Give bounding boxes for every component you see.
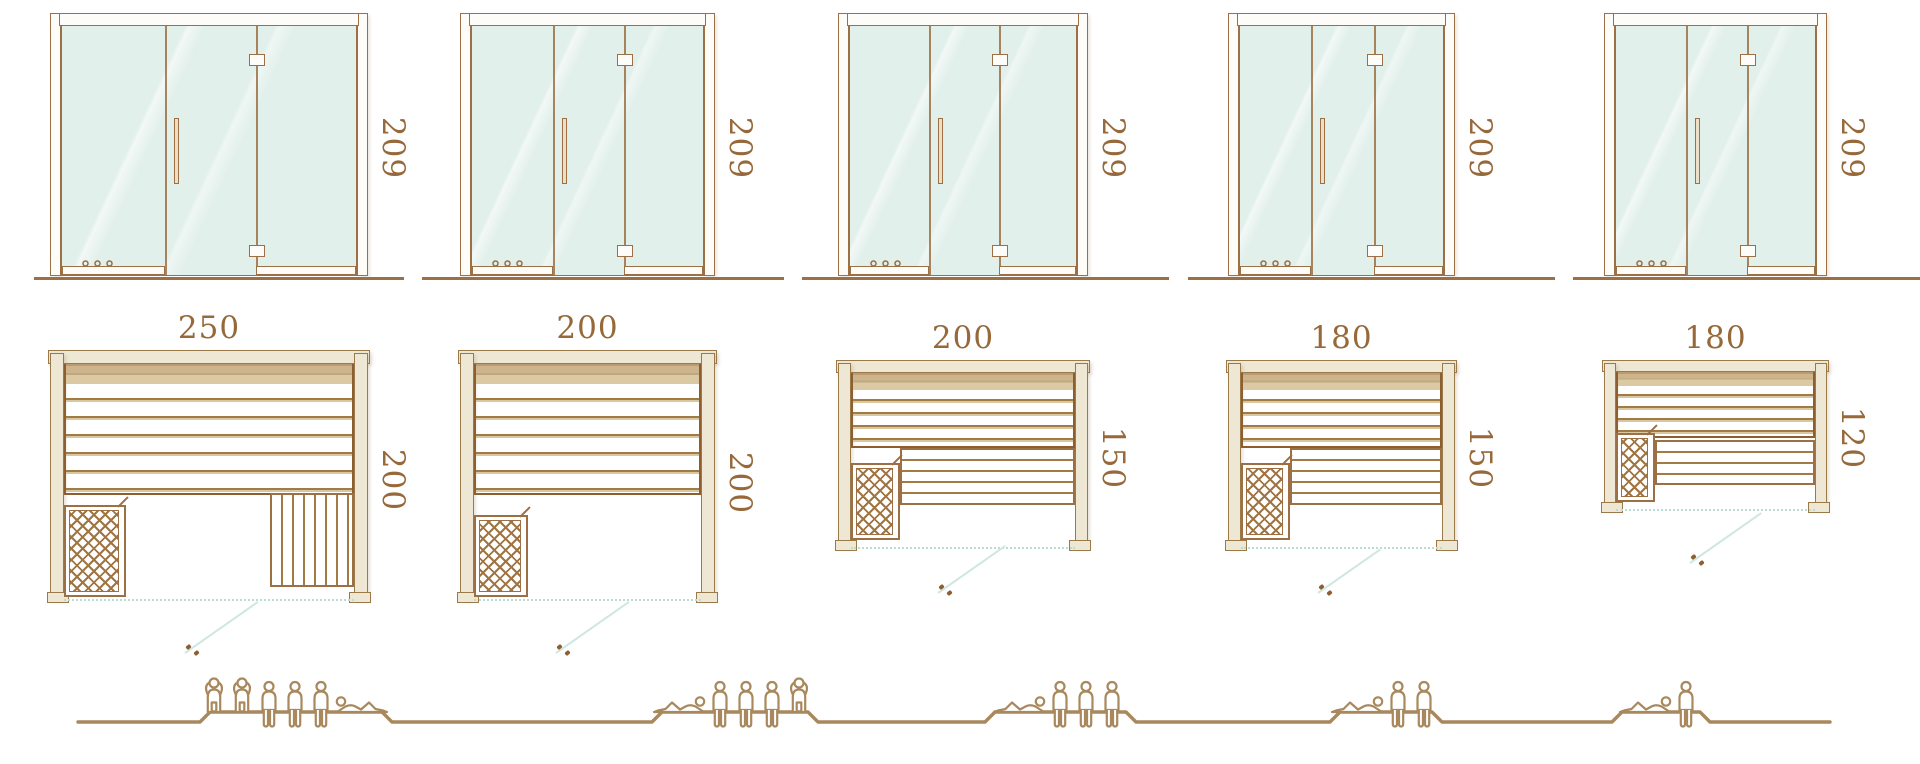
- wall-foot: [1808, 502, 1830, 513]
- door-front-elevation: [1228, 13, 1455, 277]
- glass-front-line: [474, 599, 701, 601]
- heater: [474, 515, 528, 597]
- frame-post-left-icon: [50, 13, 61, 276]
- person-sitting-icon: [766, 682, 779, 727]
- person-sitting-icon: [714, 682, 727, 727]
- wall-top: [1226, 360, 1457, 373]
- door-height-label: 209: [1462, 117, 1498, 179]
- door-handle-icon: [1320, 118, 1325, 184]
- door-height-label: 209: [1095, 117, 1131, 179]
- wall-right: [354, 353, 368, 600]
- plinth: [1616, 266, 1686, 275]
- frame-post-right-icon: [1816, 13, 1827, 276]
- ground-line: [1573, 277, 1920, 280]
- wall-foot: [1069, 540, 1091, 551]
- heater-grill-icon: [856, 468, 893, 535]
- door-front-elevation: [1604, 13, 1827, 277]
- upper-bench: [1241, 390, 1442, 448]
- door-handle-icon: [938, 118, 943, 184]
- door-swing-line: [555, 601, 629, 654]
- ground-line: [422, 277, 784, 280]
- wall-foot: [1225, 540, 1247, 551]
- wall-right: [1815, 363, 1827, 510]
- door-hinge-icon: [1740, 245, 1756, 257]
- frame-post-left-icon: [838, 13, 849, 276]
- ground-line: [802, 277, 1169, 280]
- wall-foot: [696, 592, 718, 603]
- plan-depth-label: 200: [375, 449, 411, 511]
- heater-grill-icon: [69, 510, 119, 592]
- heater: [1241, 463, 1290, 540]
- floor-plan: 180 150: [1228, 360, 1455, 548]
- door-hinge-icon: [249, 245, 265, 257]
- glass-divider: [1311, 26, 1313, 275]
- frame-post-left-icon: [460, 13, 471, 276]
- person-reclining-icon: [994, 697, 1044, 712]
- glass-divider: [165, 26, 167, 275]
- wall-top: [48, 350, 370, 364]
- glass-front-line: [1616, 509, 1815, 511]
- plinth: [62, 266, 165, 275]
- glass-front: [1615, 25, 1816, 276]
- person-standing-icon: [791, 679, 807, 713]
- door-hinge-icon: [617, 245, 633, 257]
- plan-depth-label: 200: [722, 452, 758, 514]
- door-height-label: 209: [722, 117, 758, 179]
- heater-grill-icon: [1246, 468, 1283, 535]
- floor-plan: 250 200: [50, 350, 368, 600]
- plan-width-label: 180: [1228, 320, 1455, 354]
- side-bench: [270, 493, 354, 587]
- people-groups: [206, 679, 1692, 727]
- person-sitting-icon: [1392, 682, 1405, 727]
- plinth: [999, 266, 1076, 275]
- upper-bench: [64, 384, 354, 495]
- wall-foot: [349, 592, 371, 603]
- terrain-line: [78, 712, 1830, 722]
- wall-top: [836, 360, 1090, 373]
- heater: [1616, 433, 1655, 502]
- wall-left: [1604, 363, 1616, 510]
- door-hinge-icon: [1740, 54, 1756, 66]
- plan-width-label: 250: [50, 310, 368, 344]
- variant-column-2: 209 200 200: [460, 0, 715, 764]
- bench-backrest: [64, 364, 354, 384]
- wall-right: [701, 353, 715, 600]
- bench-backrest: [474, 364, 701, 384]
- door-hinge-icon: [1367, 245, 1383, 257]
- frame-post-right-icon: [1077, 13, 1088, 276]
- door-hinge-icon: [992, 54, 1008, 66]
- ground-line: [1188, 277, 1555, 280]
- plinth: [1747, 266, 1815, 275]
- person-standing-icon: [234, 679, 250, 713]
- wall-top: [458, 350, 717, 364]
- glass-front-line: [64, 599, 354, 601]
- person-reclining-icon: [1332, 697, 1382, 712]
- frame-post-left-icon: [1604, 13, 1615, 276]
- glass-divider: [929, 26, 931, 275]
- variant-column-5: 209 180 120: [1604, 0, 1827, 764]
- wall-left: [838, 363, 851, 548]
- door-swing-line: [1689, 512, 1761, 564]
- plan-width-label: 200: [838, 320, 1088, 354]
- glass-divider: [1686, 26, 1688, 275]
- wall-left: [1228, 363, 1241, 548]
- frame-post-right-icon: [357, 13, 368, 276]
- bench-backrest: [851, 373, 1075, 390]
- door-swing-line: [1317, 549, 1380, 594]
- wall-foot: [1601, 502, 1623, 513]
- plan-depth-label: 120: [1834, 407, 1870, 469]
- door-front-elevation: [460, 13, 715, 277]
- frame-post-left-icon: [1228, 13, 1239, 276]
- door-height-label: 209: [1834, 117, 1870, 179]
- door-pivot-dots: [1698, 560, 1704, 566]
- heater-grill-icon: [479, 520, 521, 592]
- plinth: [256, 266, 356, 275]
- bench-backrest: [1241, 373, 1442, 390]
- door-pivot-dots: [1326, 590, 1332, 596]
- upper-bench: [851, 390, 1075, 448]
- wall-top: [1602, 360, 1829, 372]
- plinth: [1240, 266, 1311, 275]
- plan-depth-label: 150: [1462, 427, 1498, 489]
- plinth: [624, 266, 703, 275]
- wall-foot: [1436, 540, 1458, 551]
- floor-plan: 200 200: [460, 350, 715, 600]
- door-front-elevation: [838, 13, 1088, 277]
- heater-grill-icon: [1621, 438, 1648, 497]
- lower-bench: [1290, 448, 1442, 505]
- frame-post-right-icon: [1444, 13, 1455, 276]
- plan-width-label: 180: [1604, 320, 1827, 354]
- glass-front: [471, 25, 704, 276]
- glass-front: [61, 25, 357, 276]
- door-height-label: 209: [375, 117, 411, 179]
- variant-column-3: 209 200 150: [838, 0, 1088, 764]
- person-sitting-icon: [315, 682, 328, 727]
- door-swing-line: [184, 601, 258, 654]
- door-hinge-icon: [249, 54, 265, 66]
- door-handle-icon: [562, 118, 567, 184]
- wall-foot: [835, 540, 857, 551]
- bench-backrest: [1616, 372, 1815, 386]
- lower-bench: [1655, 440, 1815, 485]
- upper-bench: [1616, 386, 1815, 438]
- variant-column-4: 209 180 150: [1228, 0, 1455, 764]
- person-sitting-icon: [1080, 682, 1093, 727]
- wall-right: [1075, 363, 1088, 548]
- frame-post-right-icon: [704, 13, 715, 276]
- upper-bench: [474, 384, 701, 495]
- floor-plan: 200 150: [838, 360, 1088, 548]
- wall-left: [460, 353, 474, 600]
- wall-left: [50, 353, 64, 600]
- person-reclining-icon: [1620, 697, 1670, 712]
- lower-bench: [900, 448, 1075, 505]
- person-sitting-icon: [1418, 682, 1431, 727]
- person-sitting-icon: [740, 682, 753, 727]
- person-sitting-icon: [1106, 682, 1119, 727]
- door-hinge-icon: [992, 245, 1008, 257]
- floor-plan: 180 120: [1604, 360, 1827, 510]
- ground-line: [34, 277, 404, 280]
- door-handle-icon: [1695, 118, 1700, 184]
- glass-front-line: [1241, 547, 1442, 549]
- wall-right: [1442, 363, 1455, 548]
- person-sitting-icon: [263, 682, 276, 727]
- door-hinge-icon: [617, 54, 633, 66]
- variant-column-1: 209 250 200: [50, 0, 368, 764]
- door-swing-line: [937, 545, 1005, 594]
- sauna-size-diagram: 209 250 200: [0, 0, 1920, 764]
- person-sitting-icon: [1054, 682, 1067, 727]
- door-handle-icon: [174, 118, 179, 184]
- plan-depth-label: 150: [1095, 427, 1131, 489]
- heater: [851, 463, 900, 540]
- plinth: [1374, 266, 1443, 275]
- plinth: [472, 266, 553, 275]
- person-reclining-icon: [654, 697, 704, 712]
- door-front-elevation: [50, 13, 368, 277]
- glass-front: [1239, 25, 1444, 276]
- glass-front-line: [851, 547, 1075, 549]
- door-hinge-icon: [1367, 54, 1383, 66]
- heater: [64, 505, 126, 597]
- person-sitting-icon: [289, 682, 302, 727]
- plan-width-label: 200: [460, 310, 715, 344]
- person-reclining-icon: [337, 697, 387, 712]
- plinth: [850, 266, 929, 275]
- glass-divider: [553, 26, 555, 275]
- person-sitting-icon: [1680, 682, 1693, 727]
- glass-front: [849, 25, 1077, 276]
- capacity-illustration: [0, 655, 1920, 764]
- door-pivot-dots: [946, 590, 952, 596]
- person-standing-icon: [206, 679, 222, 713]
